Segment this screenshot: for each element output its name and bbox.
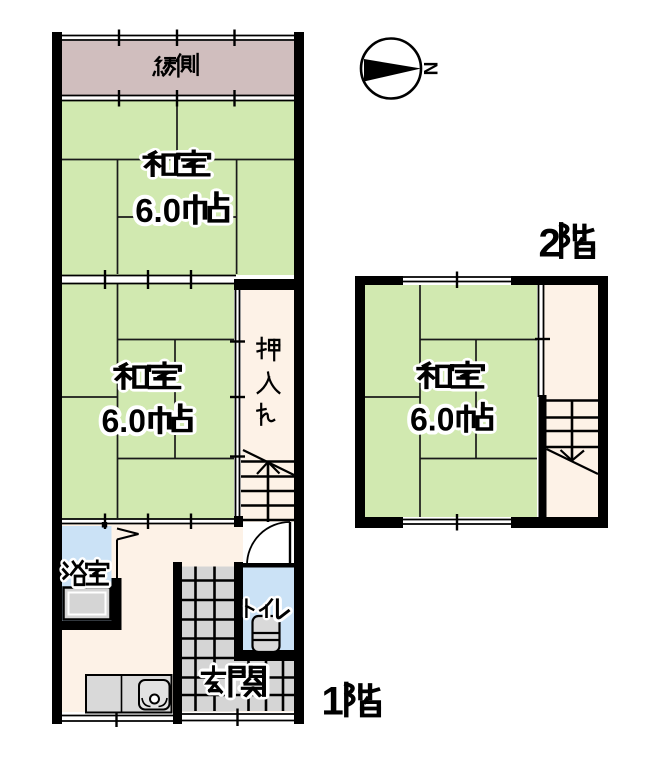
svg-text:1: 1 — [322, 680, 344, 724]
svg-text:N: N — [419, 62, 440, 76]
svg-text:6.0: 6.0 — [102, 403, 146, 439]
svg-text:2: 2 — [539, 222, 561, 266]
svg-text:6.0: 6.0 — [410, 402, 454, 438]
svg-text:6.0: 6.0 — [135, 192, 181, 229]
